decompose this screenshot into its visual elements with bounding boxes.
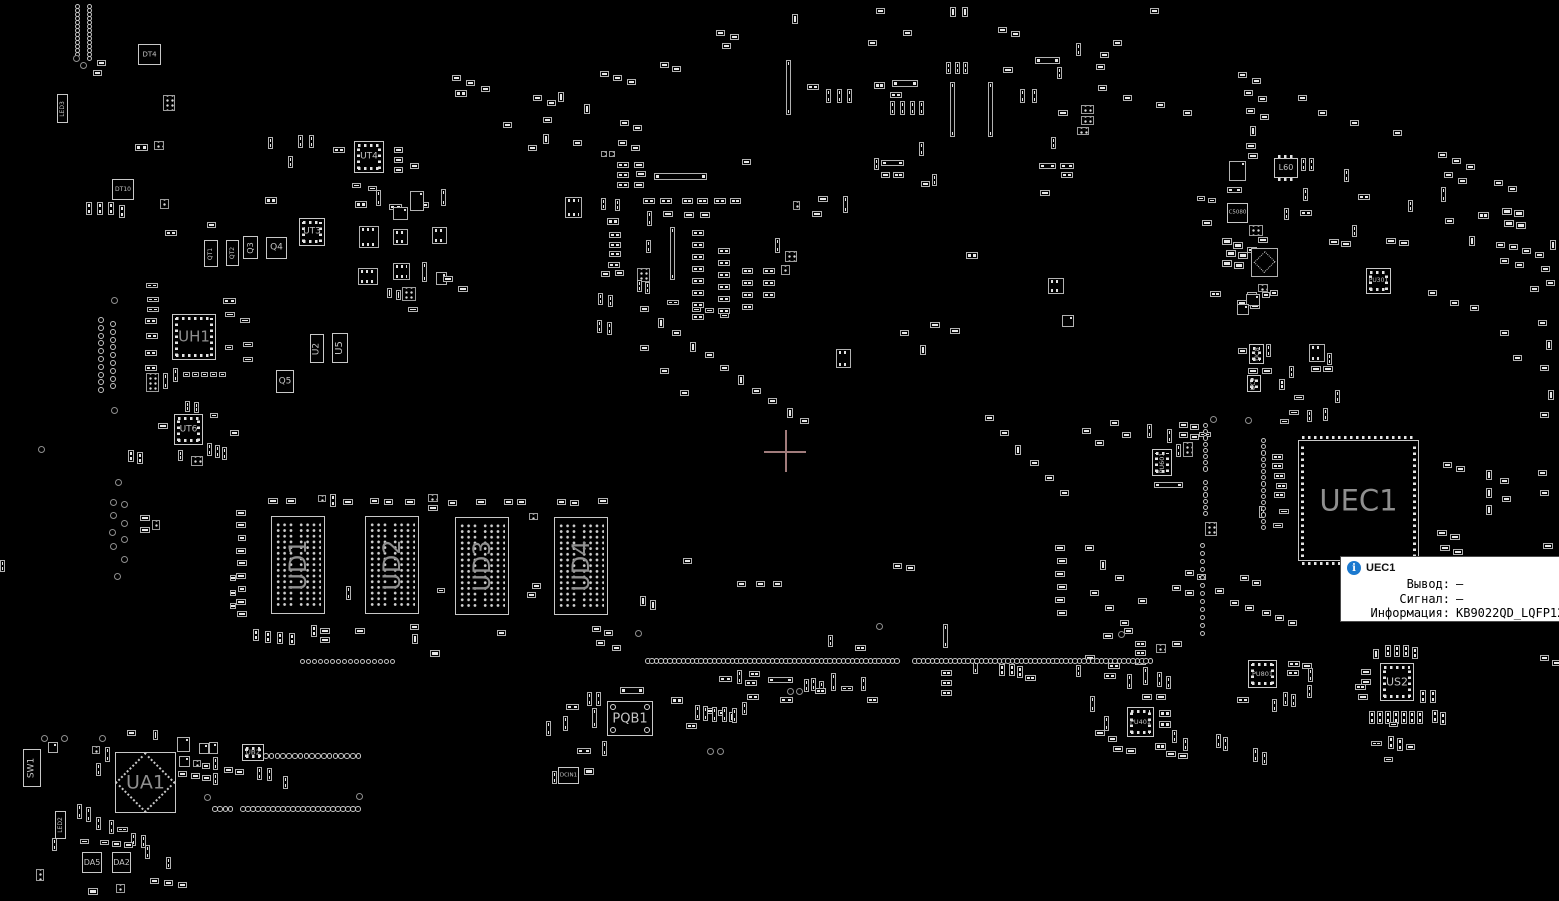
component-da5[interactable]: DA5 bbox=[82, 852, 102, 873]
board-part[interactable] bbox=[236, 522, 246, 528]
board-part[interactable] bbox=[236, 573, 246, 579]
board-part[interactable] bbox=[1294, 395, 1304, 400]
board-part[interactable] bbox=[209, 742, 218, 754]
board-part[interactable] bbox=[1440, 712, 1446, 725]
board-part[interactable] bbox=[1466, 164, 1475, 170]
board-part[interactable] bbox=[109, 820, 114, 834]
board-part[interactable] bbox=[1289, 410, 1299, 415]
board-part[interactable] bbox=[257, 767, 262, 780]
board-part[interactable] bbox=[1110, 420, 1119, 426]
board-part[interactable] bbox=[1251, 248, 1278, 277]
component-q5[interactable]: Q5 bbox=[276, 370, 294, 393]
board-part[interactable] bbox=[742, 702, 747, 715]
board-part[interactable] bbox=[105, 747, 110, 762]
board-part[interactable] bbox=[1159, 721, 1171, 728]
board-part[interactable] bbox=[277, 632, 283, 644]
component-ut4[interactable]: UT4 bbox=[354, 141, 384, 173]
board-part[interactable] bbox=[1082, 428, 1091, 434]
board-part[interactable] bbox=[100, 840, 109, 845]
board-part[interactable] bbox=[88, 888, 98, 895]
board-part[interactable] bbox=[145, 845, 150, 859]
board-part[interactable] bbox=[1307, 685, 1312, 698]
board-part[interactable] bbox=[219, 372, 226, 377]
board-part[interactable] bbox=[1318, 110, 1327, 116]
board-part[interactable] bbox=[1445, 218, 1454, 224]
board-part[interactable] bbox=[1386, 238, 1396, 244]
board-part[interactable] bbox=[213, 757, 218, 770]
board-part[interactable] bbox=[164, 880, 173, 886]
board-part[interactable] bbox=[597, 320, 602, 333]
board-part[interactable] bbox=[1399, 240, 1409, 246]
board-part[interactable] bbox=[207, 222, 216, 228]
board-part[interactable] bbox=[692, 314, 704, 320]
board-part[interactable] bbox=[432, 227, 447, 244]
board-part[interactable] bbox=[1494, 180, 1503, 186]
board-part[interactable] bbox=[96, 817, 101, 830]
component-ut6[interactable]: UT6 bbox=[174, 414, 203, 445]
board-part[interactable] bbox=[943, 624, 948, 648]
board-part[interactable] bbox=[201, 372, 208, 377]
board-part[interactable] bbox=[533, 95, 542, 101]
board-part[interactable] bbox=[716, 30, 725, 36]
board-part[interactable] bbox=[647, 211, 652, 226]
board-part[interactable] bbox=[962, 7, 968, 17]
board-part[interactable] bbox=[742, 268, 753, 274]
board-part[interactable] bbox=[1335, 390, 1340, 403]
component-pqb1[interactable]: PQB1 bbox=[607, 701, 653, 736]
board-part[interactable] bbox=[660, 368, 669, 374]
board-part[interactable] bbox=[667, 300, 679, 305]
board-part[interactable] bbox=[178, 450, 183, 461]
board-part[interactable] bbox=[584, 768, 594, 775]
board-part[interactable] bbox=[1167, 429, 1172, 443]
board-part[interactable] bbox=[402, 287, 416, 301]
board-part[interactable] bbox=[643, 198, 655, 204]
board-part[interactable] bbox=[1303, 188, 1308, 201]
board-part[interactable] bbox=[670, 227, 675, 280]
board-part[interactable] bbox=[160, 199, 169, 209]
board-part[interactable] bbox=[1341, 241, 1351, 247]
board-part[interactable] bbox=[193, 760, 201, 767]
board-part[interactable] bbox=[612, 645, 621, 651]
board-part[interactable] bbox=[230, 603, 236, 609]
board-part[interactable] bbox=[1039, 163, 1056, 169]
board-part[interactable] bbox=[1502, 208, 1512, 215]
board-part[interactable] bbox=[410, 191, 424, 211]
board-part[interactable] bbox=[1060, 163, 1074, 169]
board-part[interactable] bbox=[1245, 605, 1254, 611]
board-part[interactable] bbox=[793, 201, 800, 210]
board-part[interactable] bbox=[697, 198, 708, 204]
board-part[interactable] bbox=[517, 499, 526, 505]
board-part[interactable] bbox=[192, 372, 199, 377]
board-part[interactable] bbox=[86, 202, 92, 215]
board-part[interactable] bbox=[1441, 187, 1446, 202]
board-part[interactable] bbox=[1540, 412, 1549, 418]
board-part[interactable] bbox=[660, 62, 669, 68]
board-part[interactable] bbox=[604, 630, 613, 636]
board-part[interactable] bbox=[1104, 716, 1109, 731]
board-part[interactable] bbox=[547, 100, 556, 106]
board-part[interactable] bbox=[680, 390, 689, 396]
board-part[interactable] bbox=[1272, 699, 1277, 712]
board-part[interactable] bbox=[660, 198, 672, 204]
board-part[interactable] bbox=[458, 286, 468, 292]
board-part[interactable] bbox=[1540, 655, 1549, 661]
board-part[interactable] bbox=[804, 679, 809, 692]
board-part[interactable] bbox=[1076, 665, 1081, 677]
board-part[interactable] bbox=[602, 741, 607, 756]
board-part[interactable] bbox=[179, 756, 190, 767]
board-part[interactable] bbox=[1250, 126, 1256, 136]
board-part[interactable] bbox=[96, 763, 101, 776]
component-pu601[interactable]: PU601 bbox=[1152, 449, 1172, 476]
board-part[interactable] bbox=[1486, 488, 1492, 498]
board-part[interactable] bbox=[637, 280, 642, 292]
board-part[interactable] bbox=[1502, 496, 1511, 502]
board-part[interactable] bbox=[1301, 158, 1306, 171]
board-part[interactable] bbox=[210, 372, 217, 377]
board-part[interactable] bbox=[1055, 571, 1065, 577]
board-part[interactable] bbox=[1409, 711, 1415, 724]
board-part[interactable] bbox=[1344, 169, 1349, 182]
component-q4[interactable]: Q4 bbox=[266, 237, 287, 259]
board-part[interactable] bbox=[868, 40, 877, 46]
board-part[interactable] bbox=[213, 773, 218, 785]
board-part[interactable] bbox=[0, 560, 5, 572]
board-part[interactable] bbox=[394, 157, 403, 163]
board-part[interactable] bbox=[1548, 390, 1554, 400]
board-part[interactable] bbox=[384, 499, 393, 505]
board-part[interactable] bbox=[140, 515, 150, 521]
board-part[interactable] bbox=[1393, 130, 1402, 136]
board-part[interactable] bbox=[763, 268, 775, 274]
board-part[interactable] bbox=[843, 196, 848, 213]
board-part[interactable] bbox=[609, 232, 621, 238]
board-part[interactable] bbox=[1048, 278, 1064, 294]
board-part[interactable] bbox=[1432, 710, 1438, 723]
board-part[interactable] bbox=[202, 775, 211, 781]
board-part[interactable] bbox=[1062, 315, 1074, 327]
board-part[interactable] bbox=[1100, 52, 1109, 58]
board-part[interactable] bbox=[146, 373, 159, 392]
board-part[interactable] bbox=[1540, 365, 1549, 371]
board-part[interactable] bbox=[941, 680, 952, 686]
board-part[interactable] bbox=[1458, 178, 1467, 184]
board-part[interactable] bbox=[1478, 212, 1489, 219]
board-part[interactable] bbox=[919, 101, 924, 115]
board-part[interactable] bbox=[1077, 127, 1089, 135]
board-part[interactable] bbox=[1057, 584, 1067, 590]
board-part[interactable] bbox=[732, 708, 737, 723]
board-part[interactable] bbox=[563, 716, 568, 731]
board-part[interactable] bbox=[298, 135, 303, 148]
board-part[interactable] bbox=[191, 773, 200, 779]
board-part[interactable] bbox=[700, 212, 710, 218]
board-part[interactable] bbox=[703, 706, 708, 721]
board-part[interactable] bbox=[146, 283, 158, 288]
board-part[interactable] bbox=[737, 581, 746, 587]
board-part[interactable] bbox=[686, 723, 697, 729]
board-part[interactable] bbox=[1238, 72, 1247, 78]
board-part[interactable] bbox=[1090, 696, 1095, 712]
board-part[interactable] bbox=[1183, 442, 1193, 457]
board-part[interactable] bbox=[1147, 424, 1152, 438]
board-part[interactable] bbox=[1166, 751, 1176, 757]
board-part[interactable] bbox=[236, 510, 246, 516]
board-part[interactable] bbox=[330, 494, 336, 507]
board-part[interactable] bbox=[1260, 114, 1269, 120]
board-part[interactable] bbox=[775, 238, 780, 253]
board-part[interactable] bbox=[768, 677, 793, 683]
board-part[interactable] bbox=[692, 290, 704, 296]
board-part[interactable] bbox=[1428, 290, 1437, 296]
board-part[interactable] bbox=[636, 171, 646, 177]
board-part[interactable] bbox=[207, 443, 212, 456]
board-part[interactable] bbox=[455, 90, 467, 97]
board-part[interactable] bbox=[1095, 440, 1104, 446]
board-part[interactable] bbox=[1183, 110, 1192, 116]
board-part[interactable] bbox=[77, 804, 82, 819]
board-part[interactable] bbox=[631, 145, 640, 151]
board-part[interactable] bbox=[683, 558, 692, 564]
board-part[interactable] bbox=[140, 527, 150, 533]
component-da2[interactable]: DA2 bbox=[112, 852, 131, 873]
board-part[interactable] bbox=[1172, 585, 1181, 591]
board-part[interactable] bbox=[608, 262, 620, 268]
board-part[interactable] bbox=[684, 212, 694, 218]
board-part[interactable] bbox=[1298, 95, 1307, 101]
board-part[interactable] bbox=[320, 637, 330, 643]
board-part[interactable] bbox=[1352, 225, 1357, 237]
board-part[interactable] bbox=[1397, 738, 1403, 751]
component-ut3[interactable]: UT3 bbox=[299, 218, 325, 246]
board-part[interactable] bbox=[1420, 690, 1426, 703]
board-part[interactable] bbox=[930, 322, 940, 328]
board-part[interactable] bbox=[358, 268, 378, 285]
board-part[interactable] bbox=[1394, 645, 1400, 657]
board-part[interactable] bbox=[1045, 475, 1054, 481]
board-part[interactable] bbox=[1025, 675, 1036, 681]
board-part[interactable] bbox=[1253, 748, 1258, 762]
board-part[interactable] bbox=[892, 80, 918, 87]
board-part[interactable] bbox=[640, 596, 646, 606]
board-part[interactable] bbox=[1205, 522, 1217, 536]
board-part[interactable] bbox=[1032, 89, 1037, 103]
board-part[interactable] bbox=[1275, 615, 1284, 621]
board-part[interactable] bbox=[532, 583, 541, 589]
board-part[interactable] bbox=[671, 697, 683, 704]
board-part[interactable] bbox=[194, 402, 199, 413]
board-part[interactable] bbox=[1057, 610, 1067, 616]
board-part[interactable] bbox=[932, 174, 937, 186]
component-pu401[interactable]: PU401 bbox=[1127, 707, 1154, 737]
board-part[interactable] bbox=[672, 330, 681, 336]
board-part[interactable] bbox=[1040, 190, 1050, 196]
board-part[interactable] bbox=[135, 144, 148, 151]
board-part[interactable] bbox=[343, 499, 353, 505]
board-part[interactable] bbox=[1248, 368, 1258, 374]
board-part[interactable] bbox=[640, 345, 649, 351]
board-part[interactable] bbox=[720, 313, 729, 318]
board-part[interactable] bbox=[919, 142, 924, 156]
board-part[interactable] bbox=[1155, 743, 1166, 750]
board-part[interactable] bbox=[607, 218, 619, 225]
board-part[interactable] bbox=[1262, 292, 1270, 298]
board-part[interactable] bbox=[1270, 290, 1278, 296]
board-part[interactable] bbox=[408, 307, 418, 312]
board-part[interactable] bbox=[1450, 300, 1459, 306]
board-part[interactable] bbox=[1055, 545, 1065, 551]
board-part[interactable] bbox=[1516, 222, 1526, 229]
board-part[interactable] bbox=[437, 588, 445, 593]
board-part[interactable] bbox=[712, 707, 717, 722]
board-part[interactable] bbox=[876, 8, 885, 14]
board-part[interactable] bbox=[1450, 534, 1460, 540]
board-part[interactable] bbox=[598, 293, 603, 305]
board-part[interactable] bbox=[1252, 78, 1261, 84]
board-part[interactable] bbox=[412, 634, 418, 644]
board-part[interactable] bbox=[1208, 198, 1216, 203]
board-part[interactable] bbox=[1385, 645, 1391, 657]
board-part[interactable] bbox=[124, 842, 133, 848]
board-part[interactable] bbox=[718, 284, 730, 290]
board-part[interactable] bbox=[773, 581, 782, 587]
board-part[interactable] bbox=[730, 198, 741, 204]
board-part[interactable] bbox=[309, 135, 314, 148]
board-part[interactable] bbox=[831, 673, 836, 691]
board-part[interactable] bbox=[1515, 262, 1524, 268]
board-part[interactable] bbox=[158, 423, 168, 429]
board-part[interactable] bbox=[1486, 470, 1492, 480]
board-part[interactable] bbox=[950, 7, 956, 17]
board-part[interactable] bbox=[1453, 549, 1463, 555]
board-part[interactable] bbox=[165, 230, 177, 236]
board-part[interactable] bbox=[722, 43, 731, 49]
board-part[interactable] bbox=[503, 122, 512, 128]
board-part[interactable] bbox=[608, 295, 613, 307]
board-part[interactable] bbox=[785, 251, 797, 262]
component-qt2[interactable]: QT2 bbox=[226, 240, 239, 266]
board-part[interactable] bbox=[48, 742, 58, 753]
board-part[interactable] bbox=[1055, 597, 1065, 603]
board-part[interactable] bbox=[177, 737, 190, 752]
board-part[interactable] bbox=[1311, 366, 1321, 372]
board-part[interactable] bbox=[311, 625, 317, 637]
board-part[interactable] bbox=[742, 292, 753, 298]
component-c5080[interactable]: C5080 bbox=[1227, 203, 1248, 223]
board-part[interactable] bbox=[152, 520, 160, 530]
board-part[interactable] bbox=[1223, 737, 1228, 751]
board-part[interactable] bbox=[393, 229, 408, 245]
component-ud4[interactable]: UD4 bbox=[554, 517, 608, 615]
board-part[interactable] bbox=[36, 869, 44, 881]
board-part[interactable] bbox=[598, 498, 608, 504]
board-part[interactable] bbox=[950, 328, 960, 334]
board-part[interactable] bbox=[1248, 153, 1258, 159]
board-part[interactable] bbox=[1350, 120, 1359, 126]
board-part[interactable] bbox=[1546, 280, 1555, 286]
board-part[interactable] bbox=[613, 75, 622, 81]
board-part[interactable] bbox=[565, 197, 582, 218]
board-part[interactable] bbox=[1238, 348, 1247, 354]
board-part[interactable] bbox=[1150, 8, 1159, 14]
board-part[interactable] bbox=[215, 445, 220, 458]
board-part[interactable] bbox=[1504, 220, 1514, 227]
board-part[interactable] bbox=[1233, 242, 1243, 249]
component-us2[interactable]: US2 bbox=[1380, 663, 1414, 701]
board-part[interactable] bbox=[890, 101, 895, 115]
board-part[interactable] bbox=[1408, 200, 1413, 212]
board-part[interactable] bbox=[1095, 730, 1105, 736]
board-part[interactable] bbox=[692, 278, 704, 284]
board-part[interactable] bbox=[752, 388, 761, 394]
board-part[interactable] bbox=[1185, 570, 1194, 576]
board-part[interactable] bbox=[607, 322, 612, 335]
board-part[interactable] bbox=[1216, 734, 1221, 748]
board-part[interactable] bbox=[1509, 244, 1518, 250]
board-part[interactable] bbox=[1289, 366, 1294, 378]
board-part[interactable] bbox=[620, 687, 644, 694]
board-part[interactable] bbox=[1081, 105, 1094, 114]
board-part[interactable] bbox=[1262, 610, 1271, 616]
board-part[interactable] bbox=[1156, 102, 1165, 108]
board-part[interactable] bbox=[787, 408, 793, 418]
board-part[interactable] bbox=[1369, 711, 1375, 724]
board-part[interactable] bbox=[253, 629, 259, 641]
board-part[interactable] bbox=[1035, 57, 1060, 64]
component-q3[interactable]: Q3 bbox=[243, 236, 258, 259]
board-part[interactable] bbox=[1210, 291, 1221, 297]
board-part[interactable] bbox=[615, 199, 620, 211]
board-part[interactable] bbox=[224, 767, 233, 773]
board-part[interactable] bbox=[645, 282, 650, 294]
board-part[interactable] bbox=[609, 151, 615, 157]
board-part[interactable] bbox=[529, 513, 538, 520]
board-part[interactable] bbox=[893, 172, 904, 178]
board-part[interactable] bbox=[1469, 236, 1475, 246]
board-part[interactable] bbox=[1262, 752, 1267, 765]
board-part[interactable] bbox=[1183, 738, 1188, 751]
board-part[interactable] bbox=[1384, 757, 1393, 762]
board-part[interactable] bbox=[376, 190, 381, 206]
board-part[interactable] bbox=[86, 807, 91, 822]
board-part[interactable] bbox=[1226, 250, 1236, 257]
board-part[interactable] bbox=[742, 304, 753, 310]
board-part[interactable] bbox=[346, 586, 351, 600]
board-part[interactable] bbox=[1412, 647, 1418, 659]
board-part[interactable] bbox=[1470, 305, 1479, 311]
board-part[interactable] bbox=[238, 535, 246, 541]
board-part[interactable] bbox=[1020, 89, 1025, 103]
board-part[interactable] bbox=[1126, 748, 1136, 754]
board-part[interactable] bbox=[1401, 711, 1407, 724]
board-part[interactable] bbox=[1417, 711, 1423, 724]
board-part[interactable] bbox=[265, 631, 271, 643]
board-part[interactable] bbox=[718, 296, 730, 302]
board-part[interactable] bbox=[714, 198, 726, 204]
board-part[interactable] bbox=[966, 252, 978, 259]
board-part[interactable] bbox=[116, 884, 125, 893]
board-part[interactable] bbox=[1124, 628, 1133, 634]
board-part[interactable] bbox=[1157, 672, 1162, 687]
board-part[interactable] bbox=[1550, 240, 1556, 250]
board-part[interactable] bbox=[352, 183, 361, 188]
board-part[interactable] bbox=[92, 746, 100, 754]
board-part[interactable] bbox=[1003, 67, 1013, 73]
board-part[interactable] bbox=[646, 240, 651, 253]
board-part[interactable] bbox=[1355, 684, 1366, 690]
